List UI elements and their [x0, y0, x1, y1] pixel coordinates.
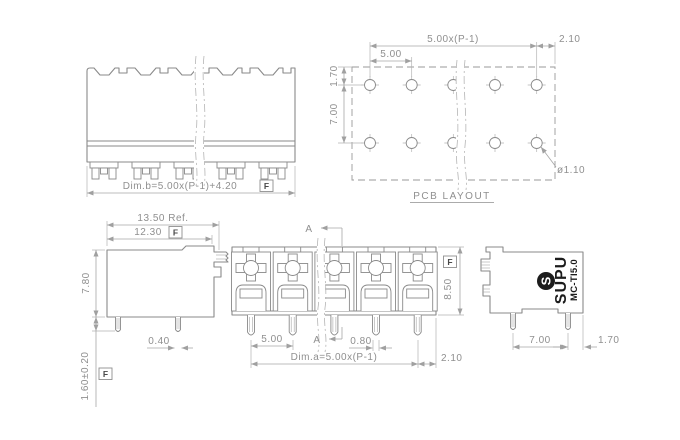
rear-pin-cluster [259, 162, 287, 179]
cluster-bar [217, 162, 245, 168]
solder-pin [289, 315, 296, 335]
cluster-slot [101, 168, 108, 174]
cell-top-tab [368, 247, 384, 252]
cluster-slot [228, 168, 235, 174]
tolerance-flag: F [103, 369, 108, 379]
cluster-slot [270, 168, 277, 174]
pitch-label: 5.00 [261, 334, 282, 345]
hole-circle [406, 138, 417, 149]
left-body-outline [107, 246, 228, 317]
pin-width-label: 0.40 [148, 336, 169, 347]
terminal-cell [357, 247, 396, 335]
cluster-bar [259, 162, 287, 168]
solder-pin [511, 313, 516, 330]
section-label-bottom: A [313, 335, 320, 346]
terminal-cells [232, 247, 438, 335]
front-view: A A 5.00 0.80 Dim.a=5.00x(P-1) 2.10 F 8.… [232, 224, 465, 368]
solder-pin [331, 315, 338, 335]
terminal-cell [232, 247, 271, 335]
pcb-hole [486, 76, 504, 94]
clamp-band [407, 289, 429, 298]
hole-circle [531, 138, 542, 149]
solder-pin [373, 315, 380, 335]
tolerance-flag: F [173, 228, 178, 238]
solder-pin [248, 315, 255, 335]
hole-circle [490, 80, 501, 91]
model-number: MC-TI5.0 [569, 259, 580, 301]
pcb-hole [528, 76, 546, 94]
cluster-leg [176, 168, 183, 179]
rear-pin-cluster [217, 162, 245, 179]
pin-span-label: 7.00 [529, 335, 550, 346]
cell-top-tab [285, 247, 301, 252]
cell-top-tab [326, 247, 342, 252]
solder-pin [176, 317, 181, 332]
pcb-edge-label: 2.10 [559, 34, 580, 45]
height-label: 7.80 [81, 272, 92, 293]
pcb-row-gap-label: 7.00 [329, 103, 340, 124]
cluster-leg [151, 168, 158, 179]
clamp-band [365, 289, 387, 298]
pcb-layout-view: 5.00x(P-1) 2.10 5.00 1.70 7.00 ø1.10 PCB… [329, 34, 585, 203]
pcb-holes [361, 76, 546, 152]
dim-b-label: Dim.b=5.00x(P-1)+4.20 [123, 181, 237, 192]
cluster-bar [90, 162, 118, 168]
tolerance-flag: F [447, 257, 452, 267]
terminal-cell [273, 247, 312, 335]
pcb-hole [486, 134, 504, 152]
hole-circle [406, 80, 417, 91]
pcb-span-label: 5.00x(P-1) [427, 34, 479, 45]
section-label-top: A [305, 224, 312, 235]
brand-block: S SUPU MC-TI5.0 [537, 256, 580, 304]
technical-drawing: Dim.b=5.00x(P-1)+4.20 F 5.00x(P-1) 2.10 … [0, 0, 680, 440]
edge-label: 1.70 [598, 335, 619, 346]
cluster-leg [134, 168, 141, 179]
cluster-leg [219, 168, 226, 179]
hole-diameter-label: ø1.10 [557, 165, 585, 176]
left-side-view: 13.50 Ref. 12.30 F 7.80 0.40 1.60±0.20 F [80, 213, 228, 407]
hole-circle [490, 138, 501, 149]
hole-circle [365, 138, 376, 149]
right-side-view: S SUPU MC-TI5.0 7.00 1.70 [481, 247, 619, 350]
pcb-hole [403, 134, 421, 152]
cluster-leg [261, 168, 268, 179]
screw-head [244, 261, 259, 276]
screw-head [369, 261, 384, 276]
cluster-slot [185, 168, 192, 174]
pcb-top-offset-label: 1.70 [329, 65, 340, 86]
dim-a-label: Dim.a=5.00x(P-1) [291, 352, 378, 363]
depth-label: 12.30 [134, 227, 162, 238]
cluster-bar [132, 162, 160, 168]
rear-view: Dim.b=5.00x(P-1)+4.20 F [87, 56, 295, 197]
height-label: 8.50 [443, 278, 454, 299]
logo-letter: S [539, 276, 554, 285]
cluster-slot [143, 168, 150, 174]
pin-width-label: 0.80 [350, 336, 371, 347]
rear-pin-cluster [132, 162, 160, 179]
cluster-leg [278, 168, 285, 179]
depth-ref-label: 13.50 Ref. [137, 213, 188, 224]
solder-pin [414, 315, 421, 335]
brand-name: SUPU [553, 256, 570, 304]
pin-length-label: 1.60±0.20 [80, 352, 91, 401]
hole-circle [531, 80, 542, 91]
clamp-band [240, 289, 262, 298]
edge-label: 2.10 [441, 353, 462, 364]
hole-circle [365, 80, 376, 91]
terminal-cell [398, 247, 437, 335]
pcb-hole [361, 76, 379, 94]
pcb-hole [403, 76, 421, 94]
rear-pin-cluster [90, 162, 118, 179]
cluster-leg [109, 168, 116, 179]
cluster-leg [236, 168, 243, 179]
cell-top-tab [243, 247, 259, 252]
cluster-leg [92, 168, 99, 179]
solder-pin [566, 313, 571, 330]
screw-head [410, 261, 425, 276]
screw-head [285, 261, 300, 276]
screw-head [327, 261, 342, 276]
rear-body-outline [87, 68, 295, 162]
pcb-hole [361, 134, 379, 152]
cell-top-tab [410, 247, 426, 252]
clamp-band [282, 289, 304, 298]
pcb-layout-title: PCB LAYOUT [413, 191, 491, 202]
solder-pin [116, 317, 121, 332]
leader-line [541, 147, 556, 167]
rear-pin-clusters [90, 162, 287, 179]
pcb-pitch-label: 5.00 [380, 49, 401, 60]
tolerance-flag: F [264, 181, 269, 191]
clamp-band [323, 289, 345, 298]
